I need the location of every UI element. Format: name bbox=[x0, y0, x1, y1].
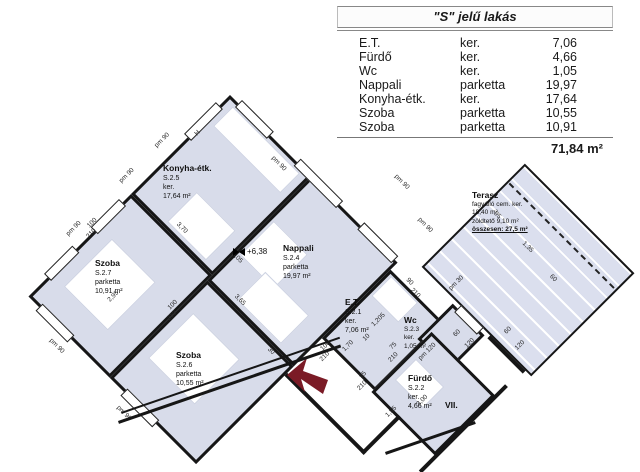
dimension-label: pm 90 bbox=[48, 337, 66, 355]
dimension-label: pm 90 bbox=[115, 404, 133, 422]
dimension-label: 210 bbox=[356, 379, 369, 392]
dimension-label: pm 90 bbox=[416, 216, 434, 234]
table-row: Fürdőker.4,66 bbox=[337, 50, 613, 64]
finish-cell: parketta bbox=[460, 106, 522, 120]
finish-cell: ker. bbox=[460, 92, 522, 106]
wall-segment bbox=[284, 373, 366, 455]
floor-plan-page: pm 90pm 90pm 90pm 90pm 90pm 90pm 90pm 90… bbox=[0, 0, 640, 472]
table-row: Nappaliparketta19,97 bbox=[337, 78, 613, 92]
table-rows: E.T.ker.7,06Fürdőker.4,66Wcker.1,05Nappa… bbox=[337, 36, 613, 134]
dimension-label: pm 90 bbox=[153, 131, 171, 149]
area-cell: 10,91 bbox=[522, 120, 577, 134]
table-row: Szobaparketta10,55 bbox=[337, 106, 613, 120]
table-row: E.T.ker.7,06 bbox=[337, 36, 613, 50]
wall-segment bbox=[361, 415, 401, 455]
finish-cell: parketta bbox=[460, 120, 522, 134]
table-row: Konyha-étk.ker.17,64 bbox=[337, 92, 613, 106]
area-cell: 19,97 bbox=[522, 78, 577, 92]
room-name-cell: Konyha-étk. bbox=[359, 92, 460, 106]
room-name-cell: Szoba bbox=[359, 106, 460, 120]
area-cell: 4,66 bbox=[522, 50, 577, 64]
finish-cell: ker. bbox=[460, 64, 522, 78]
finish-cell: ker. bbox=[460, 50, 522, 64]
table-title: "S" jelű lakás bbox=[337, 6, 613, 28]
room-name-cell: E.T. bbox=[359, 36, 460, 50]
area-cell: 1,05 bbox=[522, 64, 577, 78]
room-name-cell: Fürdő bbox=[359, 50, 460, 64]
table-row: Szobaparketta10,91 bbox=[337, 120, 613, 134]
finish-cell: parketta bbox=[460, 78, 522, 92]
dimension-label: pm 90 bbox=[118, 167, 136, 185]
area-cell: 17,64 bbox=[522, 92, 577, 106]
room-name-cell: Nappali bbox=[359, 78, 460, 92]
apartment-area-table: "S" jelű lakás E.T.ker.7,06Fürdőker.4,66… bbox=[337, 6, 613, 157]
dimension-label: pm 90 bbox=[393, 173, 411, 191]
table-row: Wcker.1,05 bbox=[337, 64, 613, 78]
room-name-cell: Wc bbox=[359, 64, 460, 78]
dimension-label: pm 90 bbox=[65, 220, 83, 238]
room-name-cell: Szoba bbox=[359, 120, 460, 134]
dimension-label: 210 bbox=[318, 350, 331, 363]
area-cell: 7,06 bbox=[522, 36, 577, 50]
table-total: 71,84 m² bbox=[337, 138, 613, 157]
finish-cell: ker. bbox=[460, 36, 522, 50]
area-cell: 10,55 bbox=[522, 106, 577, 120]
table-header-separator bbox=[337, 28, 613, 31]
